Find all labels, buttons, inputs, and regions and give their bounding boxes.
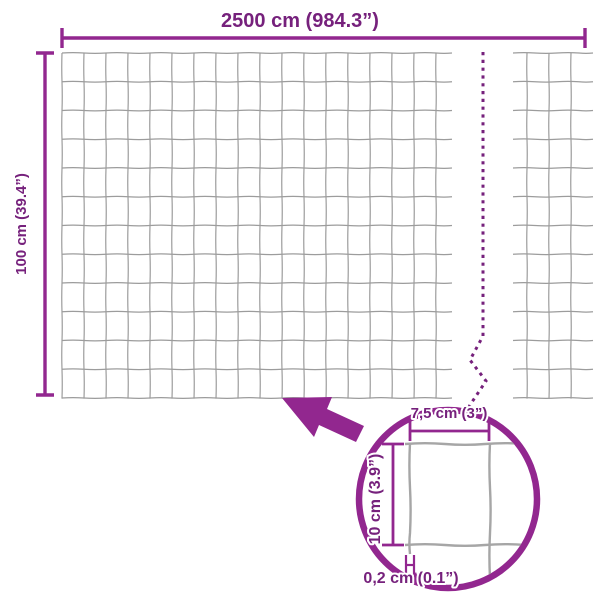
mesh-wire xyxy=(62,53,63,399)
mesh-wire xyxy=(216,53,217,399)
mesh-wire xyxy=(304,53,305,399)
mesh-wire xyxy=(513,311,593,312)
mesh-wire xyxy=(392,53,393,399)
mesh-wire xyxy=(513,398,593,399)
mesh-wire xyxy=(150,53,151,399)
mesh-wire xyxy=(414,53,415,399)
mesh-wire xyxy=(62,225,452,226)
mesh-wire xyxy=(513,110,593,111)
wire-thickness-label: 0,2 cm (0.1”) xyxy=(363,570,458,587)
mesh-wire xyxy=(513,369,593,370)
cell-height-label: 10 cm (3.9”) xyxy=(367,454,384,545)
diagram-canvas: 2500 cm (984.3”) 100 cm (39.4”) 7,5 cm (… xyxy=(0,0,600,600)
mesh-wire xyxy=(62,254,452,255)
mesh-wire xyxy=(527,53,528,399)
width-dimension: 2500 cm (984.3”) xyxy=(62,10,585,48)
mesh-wire xyxy=(513,196,593,197)
fence-dimension-diagram: 2500 cm (984.3”) 100 cm (39.4”) 7,5 cm (… xyxy=(0,0,600,600)
mesh-wire xyxy=(513,81,593,82)
height-label: 100 cm (39.4”) xyxy=(13,173,30,275)
mesh-wire xyxy=(238,53,239,399)
height-dimension: 100 cm (39.4”) xyxy=(13,53,54,395)
mesh-wire xyxy=(348,53,349,399)
mesh-wire xyxy=(128,53,129,399)
mesh-wire xyxy=(436,53,437,399)
mesh-wire xyxy=(370,53,371,399)
mesh-wire xyxy=(513,139,593,140)
width-label: 2500 cm (984.3”) xyxy=(221,10,379,32)
mesh-panel xyxy=(62,53,593,399)
mesh-wire xyxy=(62,196,452,197)
mesh-wire xyxy=(282,53,283,399)
mesh-wire xyxy=(513,168,593,169)
detail-lens: 7,5 cm (3”) 10 cm (3.9”) 0,2 cm (0.1”) xyxy=(359,405,545,592)
mesh-wire xyxy=(62,340,452,341)
mesh-wire xyxy=(62,311,452,312)
mesh-wire xyxy=(260,53,261,399)
mesh-wire xyxy=(513,225,593,226)
mesh-wire xyxy=(513,283,593,284)
mesh-wire xyxy=(84,53,85,399)
mesh-wire xyxy=(326,53,327,399)
mesh-wire xyxy=(571,53,572,399)
cell-width-label: 7,5 cm (3”) xyxy=(411,405,488,422)
mesh-wire xyxy=(489,443,490,592)
panel-break-line xyxy=(468,52,486,408)
mesh-wire xyxy=(62,139,452,140)
mesh-wire xyxy=(106,53,107,399)
mesh-wire xyxy=(409,443,410,554)
mesh-wire xyxy=(172,53,173,399)
zoom-arrow-icon xyxy=(282,397,364,442)
mesh-wire xyxy=(62,81,452,82)
mesh-wire xyxy=(513,53,593,54)
mesh-wire xyxy=(62,283,452,284)
mesh-wire xyxy=(62,369,452,370)
mesh-wire xyxy=(513,340,593,341)
mesh-wire xyxy=(62,53,452,54)
mesh-wire xyxy=(62,168,452,169)
mesh-wire xyxy=(62,110,452,111)
mesh-wire xyxy=(513,254,593,255)
mesh-wire xyxy=(62,398,452,399)
magnifier-circle xyxy=(359,410,537,588)
mesh-wire xyxy=(194,53,195,399)
mesh-wire xyxy=(549,53,550,399)
